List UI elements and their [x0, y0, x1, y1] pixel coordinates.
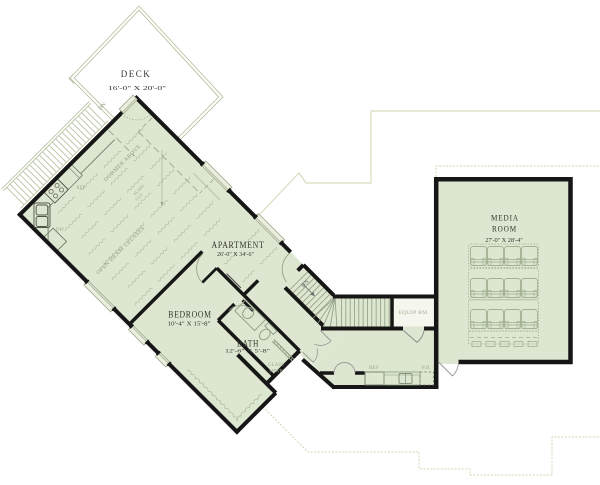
svg-text:ROOM: ROOM: [492, 225, 517, 234]
svg-text:EQUIP RM: EQUIP RM: [399, 311, 428, 316]
svg-text:W.M.: W.M.: [422, 366, 431, 371]
svg-text:GLASS: GLASS: [268, 363, 284, 368]
svg-text:12'-6" X 5'-8": 12'-6" X 5'-8": [225, 349, 270, 355]
svg-text:REF: REF: [369, 366, 379, 371]
svg-text:16'-0" X 20'-0": 16'-0" X 20'-0": [108, 86, 167, 92]
svg-text:27'-0" X 28'-4": 27'-0" X 28'-4": [485, 238, 523, 244]
svg-text:MEDIA: MEDIA: [491, 214, 519, 223]
svg-text:BATH: BATH: [237, 339, 259, 349]
svg-text:BEDROOM: BEDROOM: [168, 310, 212, 320]
svg-text:10'-4" X 15'-8": 10'-4" X 15'-8": [168, 322, 212, 328]
svg-text:DW: DW: [56, 228, 64, 233]
svg-text:26'-0" X 34'-6": 26'-0" X 34'-6": [217, 252, 255, 258]
svg-text:SHWR: SHWR: [269, 370, 284, 375]
svg-text:REF: REF: [77, 186, 86, 191]
svg-text:APARTMENT: APARTMENT: [212, 240, 265, 250]
svg-text:DECK: DECK: [121, 69, 152, 79]
